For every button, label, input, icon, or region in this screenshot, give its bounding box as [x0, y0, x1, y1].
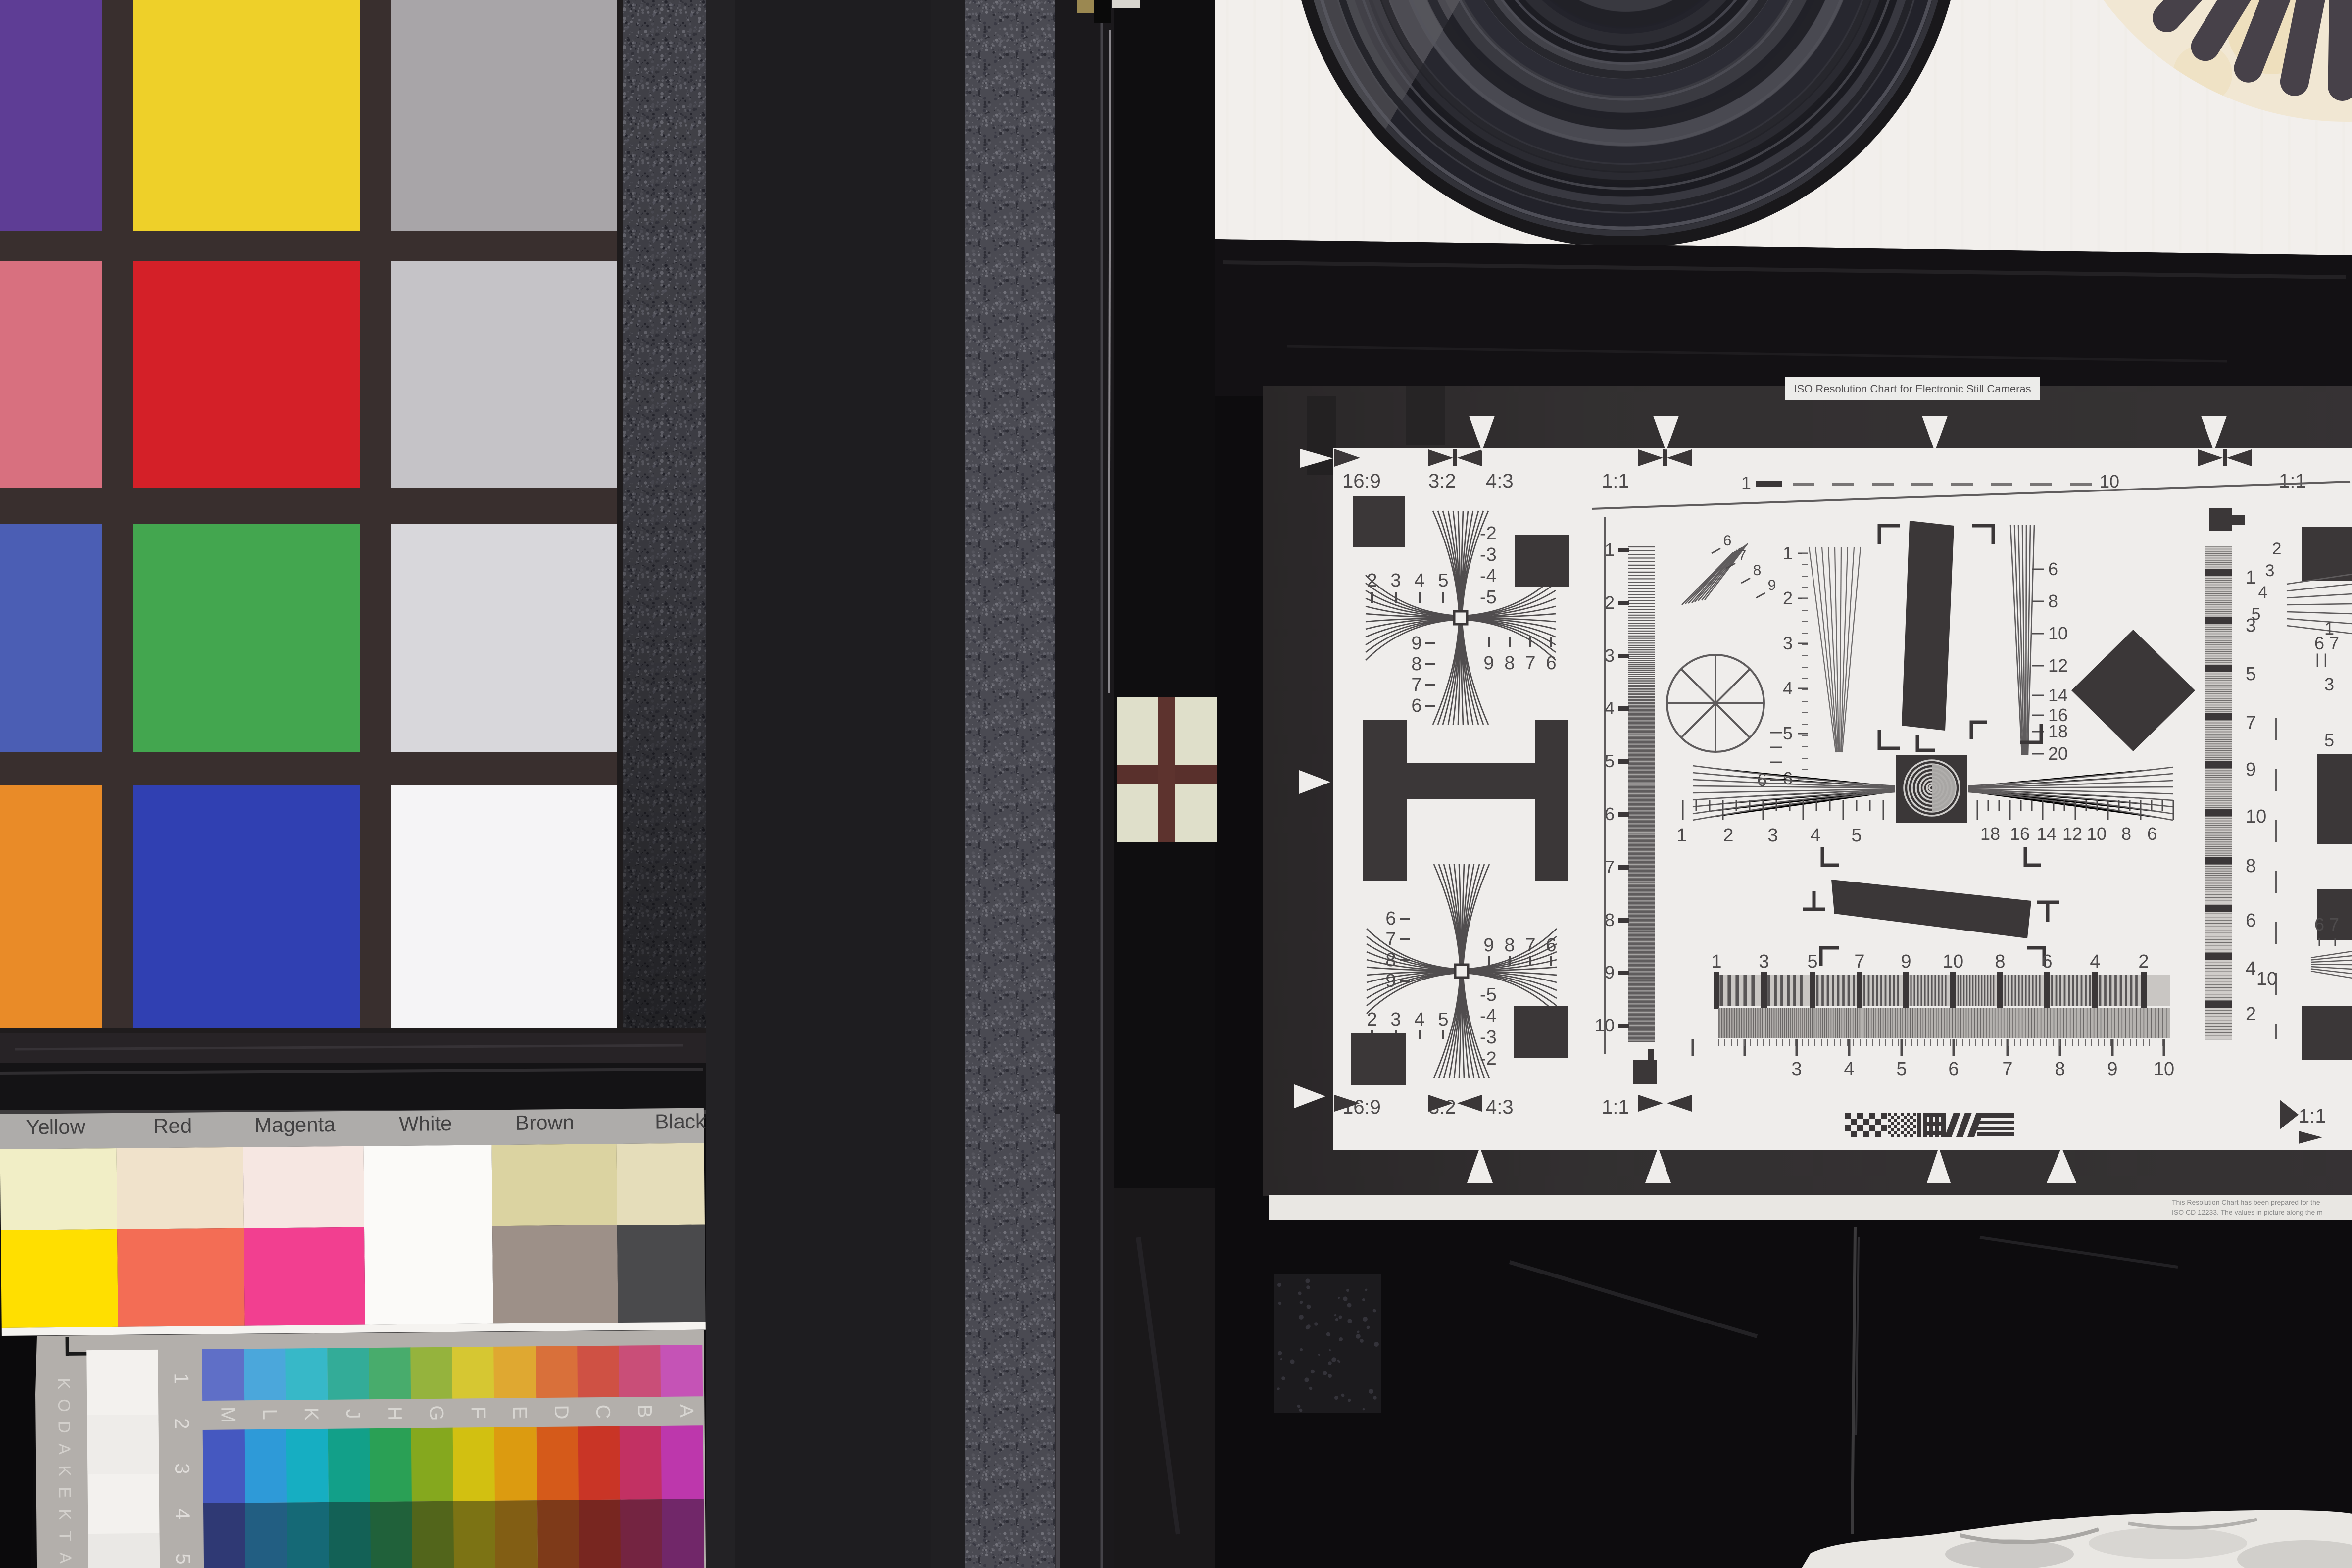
svg-text:5: 5 — [172, 1553, 194, 1565]
svg-text:5: 5 — [1851, 825, 1862, 846]
svg-text:3: 3 — [1767, 825, 1778, 846]
svg-text:1: 1 — [1676, 825, 1687, 846]
svg-text:7: 7 — [1525, 935, 1535, 956]
svg-text:14: 14 — [2037, 824, 2057, 844]
svg-text:9: 9 — [2107, 1059, 2117, 1079]
svg-text:6: 6 — [1723, 533, 1732, 549]
svg-text:2: 2 — [1605, 592, 1615, 613]
svg-text:3: 3 — [1390, 1009, 1401, 1030]
svg-text:8: 8 — [2048, 591, 2058, 611]
svg-text:10: 10 — [1595, 1015, 1615, 1035]
svg-text:12: 12 — [2048, 655, 2068, 676]
svg-text:8: 8 — [1411, 654, 1421, 675]
svg-text:20: 20 — [2048, 743, 2068, 764]
svg-text:10: 10 — [2256, 969, 2277, 989]
svg-text:5: 5 — [1896, 1059, 1907, 1079]
svg-text:| |: | | — [2315, 651, 2327, 668]
svg-text:5: 5 — [2252, 605, 2261, 624]
svg-text:10: 10 — [2246, 806, 2266, 827]
svg-text:D: D — [55, 1421, 74, 1433]
svg-text:ISO CD 12233. The values in pi: ISO CD 12233. The values in picture alon… — [2172, 1208, 2323, 1216]
svg-text:5: 5 — [2246, 664, 2256, 685]
svg-text:White: White — [399, 1112, 452, 1135]
svg-text:7: 7 — [2246, 713, 2256, 734]
svg-text:Magenta: Magenta — [254, 1113, 336, 1136]
svg-text:8: 8 — [1504, 935, 1515, 956]
svg-text:C: C — [592, 1404, 614, 1419]
svg-text:J: J — [342, 1409, 364, 1419]
svg-text:7: 7 — [1854, 951, 1864, 972]
svg-text:14: 14 — [2048, 685, 2068, 705]
svg-text:6: 6 — [1546, 935, 1556, 956]
svg-text:3: 3 — [1390, 570, 1401, 591]
svg-text:1: 1 — [2246, 567, 2256, 588]
svg-text:9: 9 — [1411, 633, 1421, 654]
svg-text:5: 5 — [1438, 1009, 1448, 1030]
svg-text:12: 12 — [2062, 824, 2082, 844]
svg-text:9: 9 — [1483, 935, 1494, 956]
svg-text:This Resolution Chart has been: This Resolution Chart has been prepared … — [2172, 1198, 2320, 1206]
svg-text:10: 10 — [2087, 824, 2107, 844]
svg-text:6: 6 — [1385, 908, 1396, 929]
svg-text:6: 6 — [1783, 768, 1793, 788]
svg-text:ISO Resolution Chart for Elect: ISO Resolution Chart for Electronic Stil… — [1794, 383, 2031, 395]
svg-text:9: 9 — [1901, 951, 1911, 972]
svg-text:D: D — [550, 1405, 572, 1419]
svg-text:7: 7 — [2002, 1059, 2012, 1079]
svg-text:A: A — [56, 1552, 75, 1564]
svg-text:10: 10 — [1943, 951, 1963, 972]
svg-text:5: 5 — [1438, 570, 1448, 591]
svg-text:3: 3 — [1605, 645, 1615, 666]
svg-text:1:1: 1:1 — [1602, 470, 1629, 492]
svg-text:9: 9 — [1385, 971, 1396, 991]
svg-text:F: F — [467, 1406, 489, 1419]
svg-text:10: 10 — [2048, 623, 2068, 643]
svg-text:O: O — [54, 1399, 73, 1412]
svg-text:7: 7 — [1605, 857, 1615, 877]
svg-text:10: 10 — [2154, 1059, 2174, 1079]
svg-text:10: 10 — [2100, 471, 2119, 491]
svg-text:6: 6 — [2048, 559, 2058, 579]
svg-text:2: 2 — [1367, 1009, 1377, 1030]
svg-text:G: G — [425, 1405, 447, 1421]
svg-text:-2: -2 — [1480, 523, 1497, 544]
svg-text:Yellow: Yellow — [26, 1115, 86, 1138]
svg-text:1:1: 1:1 — [2279, 470, 2306, 492]
svg-text:1:1: 1:1 — [1602, 1096, 1629, 1118]
svg-text:3: 3 — [171, 1463, 193, 1474]
svg-text:5: 5 — [2324, 730, 2334, 750]
svg-text:5: 5 — [1783, 723, 1793, 743]
svg-text:5: 5 — [1807, 951, 1817, 972]
svg-text:4: 4 — [2246, 958, 2256, 979]
svg-text:K: K — [55, 1465, 74, 1476]
svg-text:5: 5 — [1605, 751, 1615, 771]
svg-text:18: 18 — [2048, 721, 2068, 741]
svg-text:6: 6 — [1605, 804, 1615, 824]
svg-text:-5: -5 — [1480, 984, 1497, 1005]
svg-text:E: E — [509, 1406, 531, 1419]
svg-text:L: L — [259, 1409, 281, 1420]
svg-text:6 7: 6 7 — [2314, 914, 2339, 934]
svg-text:H: H — [384, 1406, 405, 1421]
svg-text:B: B — [634, 1405, 655, 1418]
svg-text:3: 3 — [2265, 561, 2275, 580]
svg-text:6: 6 — [1546, 653, 1556, 674]
svg-text:-3: -3 — [1480, 1027, 1497, 1048]
svg-text:Black: Black — [655, 1110, 706, 1133]
svg-text:2: 2 — [170, 1418, 192, 1429]
svg-text:K: K — [54, 1378, 73, 1389]
svg-text:E: E — [55, 1487, 74, 1498]
svg-text:8: 8 — [2246, 856, 2256, 877]
svg-text:-3: -3 — [1480, 544, 1497, 565]
svg-text:A: A — [676, 1404, 697, 1418]
svg-text:8: 8 — [1385, 950, 1396, 971]
svg-text:7: 7 — [1411, 675, 1421, 695]
svg-text:7: 7 — [1385, 929, 1396, 950]
svg-text:K: K — [55, 1509, 74, 1520]
svg-text:Brown: Brown — [515, 1111, 574, 1134]
svg-text:4: 4 — [1844, 1059, 1854, 1079]
svg-text:2: 2 — [2272, 539, 2282, 558]
svg-text:8: 8 — [1605, 910, 1615, 930]
svg-text:9: 9 — [1605, 962, 1615, 982]
svg-text:6 7: 6 7 — [2314, 633, 2339, 653]
svg-text:4: 4 — [1605, 698, 1615, 718]
svg-text:4: 4 — [1810, 825, 1820, 846]
svg-text:-2: -2 — [1480, 1048, 1497, 1069]
svg-text:3:2: 3:2 — [1428, 470, 1456, 492]
svg-text:2: 2 — [1367, 570, 1377, 591]
svg-text:-4: -4 — [1480, 566, 1497, 587]
svg-text:4: 4 — [1414, 1009, 1424, 1030]
svg-text:1: 1 — [1741, 473, 1751, 493]
svg-text:T: T — [55, 1531, 74, 1541]
svg-text:4: 4 — [171, 1508, 193, 1519]
svg-text:1: 1 — [1783, 543, 1793, 563]
svg-text:6: 6 — [1411, 695, 1421, 716]
svg-text:3: 3 — [1783, 633, 1793, 653]
svg-text:1: 1 — [1605, 539, 1615, 560]
svg-text:2: 2 — [2138, 951, 2149, 972]
svg-text:6: 6 — [2147, 824, 2157, 844]
svg-text:8: 8 — [1995, 951, 2005, 972]
svg-text:8: 8 — [2055, 1059, 2065, 1079]
svg-text:7: 7 — [1525, 653, 1535, 674]
svg-text:4: 4 — [1414, 570, 1424, 591]
svg-text:7: 7 — [1738, 547, 1747, 564]
svg-text:3: 3 — [2324, 674, 2334, 694]
svg-text:3: 3 — [1791, 1059, 1802, 1079]
svg-text:M: M — [217, 1407, 239, 1423]
svg-text:4: 4 — [2090, 951, 2100, 972]
svg-text:6: 6 — [2246, 910, 2256, 931]
svg-text:9: 9 — [1483, 653, 1494, 674]
svg-text:16: 16 — [2010, 824, 2030, 844]
svg-text:6: 6 — [1948, 1059, 1959, 1079]
svg-text:K: K — [300, 1407, 322, 1421]
svg-text:2: 2 — [2246, 1004, 2256, 1025]
svg-text:Red: Red — [153, 1114, 192, 1138]
svg-text:1: 1 — [170, 1373, 192, 1384]
svg-text:-4: -4 — [1480, 1006, 1497, 1027]
svg-text:A: A — [55, 1443, 74, 1455]
svg-text:4:3: 4:3 — [1486, 470, 1514, 492]
svg-text:6: 6 — [2042, 951, 2052, 972]
svg-text:1: 1 — [1711, 951, 1721, 972]
svg-text:18: 18 — [1980, 824, 2000, 844]
svg-text:8: 8 — [1753, 562, 1762, 579]
svg-text:2: 2 — [1723, 825, 1733, 846]
svg-text:8: 8 — [1504, 653, 1515, 674]
svg-text:-5: -5 — [1480, 587, 1497, 608]
svg-text:2: 2 — [1783, 588, 1793, 608]
svg-text:9: 9 — [2246, 759, 2256, 780]
svg-text:4: 4 — [1783, 678, 1793, 698]
svg-text:9: 9 — [1768, 577, 1776, 593]
svg-text:8: 8 — [2121, 824, 2131, 844]
svg-text:1:1: 1:1 — [2299, 1105, 2326, 1127]
svg-text:4:3: 4:3 — [1486, 1096, 1514, 1118]
svg-text:4: 4 — [2258, 583, 2268, 602]
svg-text:16:9: 16:9 — [1342, 470, 1381, 492]
svg-text:3: 3 — [1759, 951, 1769, 972]
